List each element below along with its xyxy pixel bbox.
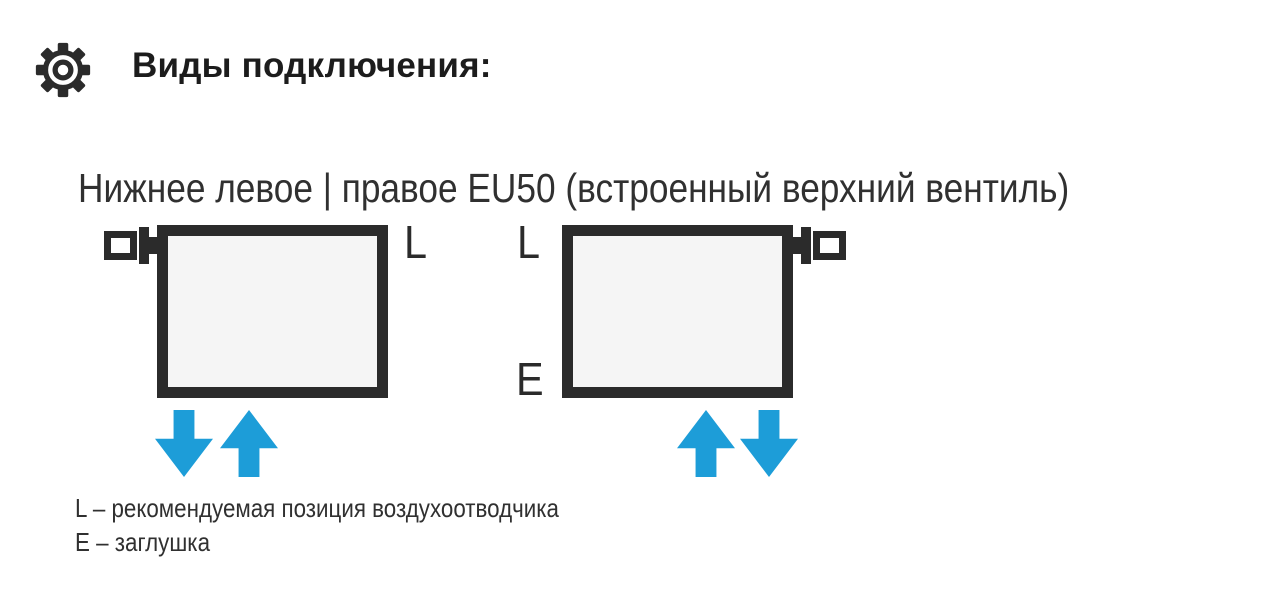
valve-body-icon [801, 227, 811, 264]
legend-line-plug: E – заглушка [75, 525, 559, 559]
air-vent-label: L [517, 219, 540, 265]
flow-arrow-up-icon [677, 410, 735, 477]
radiator-body [562, 225, 793, 398]
valve-head-icon [104, 231, 137, 260]
connection-types-diagram: Виды подключения: Нижнее левое | правое … [0, 0, 1280, 589]
air-vent-label: L [404, 219, 427, 265]
valve-connector-icon [149, 237, 157, 254]
flow-arrow-down-icon [740, 410, 798, 477]
gear-icon [34, 42, 92, 98]
legend-line-air-vent: L – рекомендуемая позиция воздухоотводчи… [75, 491, 559, 525]
plug-label: E [516, 356, 544, 402]
valve-connector-icon [793, 237, 801, 254]
connection-subtitle: Нижнее левое | правое EU50 (встроенный в… [78, 165, 1069, 212]
flow-arrow-up-icon [220, 410, 278, 477]
valve-head-icon [813, 231, 846, 260]
flow-arrow-down-icon [155, 410, 213, 477]
radiator-body [157, 225, 388, 398]
page-title: Виды подключения: [132, 46, 492, 86]
valve-body-icon [139, 227, 149, 264]
legend: L – рекомендуемая позиция воздухоотводчи… [75, 491, 559, 559]
